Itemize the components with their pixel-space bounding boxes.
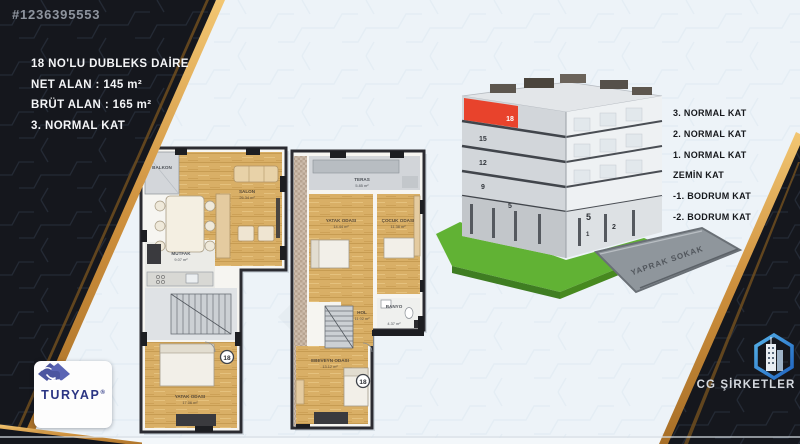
svg-text:2: 2: [612, 224, 616, 231]
svg-text:TERAS: TERAS: [354, 177, 370, 182]
floor-label: 1. NORMAL KAT: [673, 145, 751, 166]
svg-text:HOL: HOL: [357, 310, 367, 315]
listing-image: .com: [0, 0, 800, 444]
svg-text:5.85 m²: 5.85 m²: [355, 183, 369, 188]
stairs: [325, 306, 353, 348]
floor-label: 2. NORMAL KAT: [673, 124, 751, 145]
listing-net-area: NET ALAN : 145 m²: [31, 75, 189, 96]
svg-text:26.34 m²: 26.34 m²: [239, 195, 255, 200]
turyap-logo-card: TURYAP®: [34, 361, 112, 428]
svg-text:BANYO: BANYO: [386, 304, 403, 309]
svg-text:4.37 m²: 4.37 m²: [387, 321, 401, 326]
svg-text:EBEVEYN ODASI: EBEVEYN ODASI: [311, 358, 349, 363]
registered-mark: ®: [100, 390, 104, 396]
floor-label: ZEMİN KAT: [673, 165, 751, 186]
svg-text:15: 15: [479, 136, 487, 143]
unit-badge-number: 18: [359, 379, 367, 386]
handshake-icon: [34, 361, 74, 393]
svg-text:SALON: SALON: [239, 189, 256, 194]
svg-text:9.07 m²: 9.07 m²: [174, 257, 188, 262]
floor-label: 3. NORMAL KAT: [673, 103, 751, 124]
stairs: [171, 294, 231, 334]
listing-title: 18 NO'LU DUBLEKS DAİRE: [31, 54, 189, 75]
floor-label: -2. BODRUM KAT: [673, 207, 751, 228]
svg-text:11.02 m²: 11.02 m²: [354, 316, 370, 321]
cg-company-name: CG ŞİRKETLER: [694, 379, 798, 391]
svg-text:ÇOCUK ODASI: ÇOCUK ODASI: [382, 218, 415, 223]
svg-text:14.44 m²: 14.44 m²: [333, 224, 349, 229]
listing-info: 18 NO'LU DUBLEKS DAİRE NET ALAN : 145 m²…: [31, 54, 189, 136]
highlighted-floor-number: 18: [506, 116, 514, 123]
svg-text:YATAK ODASI: YATAK ODASI: [175, 394, 206, 399]
floor-label: -1. BODRUM KAT: [673, 186, 751, 207]
building-floor-labels: 3. NORMAL KAT 2. NORMAL KAT 1. NORMAL KA…: [673, 103, 751, 228]
svg-text:12: 12: [479, 160, 487, 167]
svg-text:MUTFAK: MUTFAK: [171, 251, 191, 256]
svg-text:11.38 m²: 11.38 m²: [390, 224, 406, 229]
svg-text:YATAK ODASI: YATAK ODASI: [326, 218, 357, 223]
svg-text:BALKON: BALKON: [152, 165, 172, 170]
svg-text:9: 9: [481, 184, 485, 191]
listing-id: #1236395553: [12, 7, 100, 22]
listing-gross-area: BRÜT ALAN : 165 m²: [31, 95, 189, 116]
windows: [574, 108, 642, 183]
svg-text:5: 5: [586, 212, 591, 222]
svg-text:13.12 m²: 13.12 m²: [322, 364, 338, 369]
unit-badge-number: 18: [223, 355, 231, 362]
svg-text:17.06 m²: 17.06 m²: [182, 400, 198, 405]
listing-floor: 3. NORMAL KAT: [31, 116, 189, 137]
svg-text:5: 5: [508, 203, 512, 210]
